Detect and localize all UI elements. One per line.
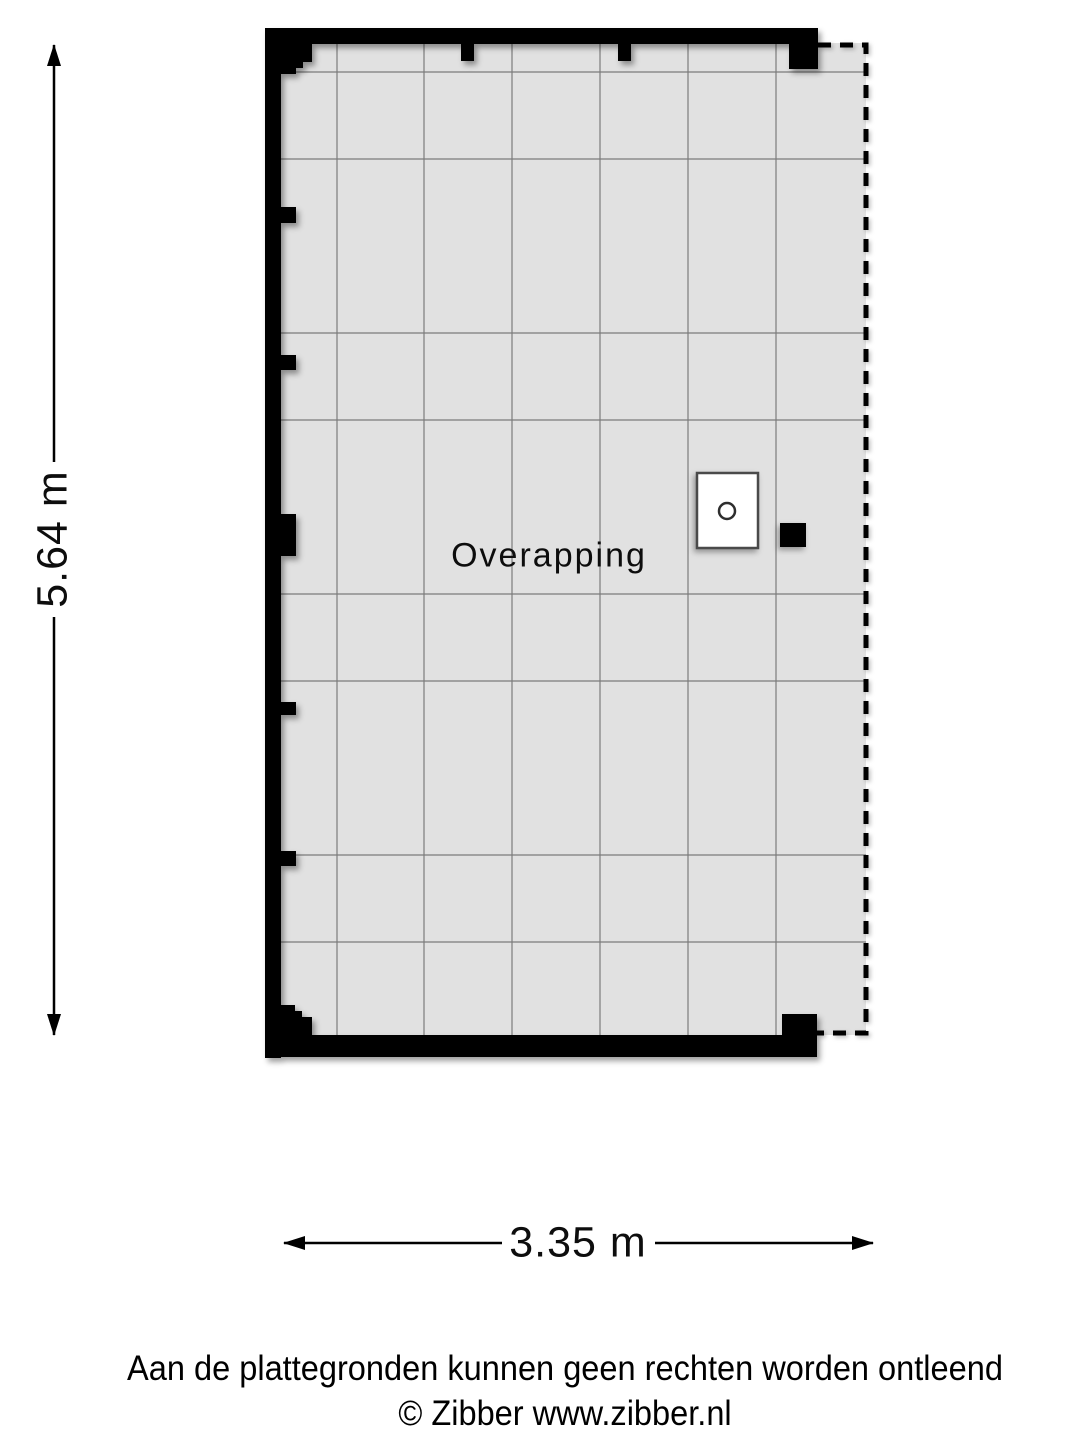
vertical-dimension-label: 5.64 m (29, 470, 78, 607)
footer-disclaimer: Aan de plattegronden kunnen geen rechten… (86, 1346, 1044, 1391)
arrow-left-icon (283, 1236, 305, 1250)
left-wall-post-5 (281, 851, 296, 866)
left-wall-post-2 (281, 355, 296, 370)
appliance-circle-icon (719, 503, 735, 519)
wall-bottom (265, 1035, 817, 1057)
pillar-block (780, 523, 806, 547)
corner-post-top-right (789, 43, 818, 69)
horizontal-dimension-label: 3.35 m (509, 1219, 646, 1268)
footer-copyright: © Zibber www.zibber.nl (86, 1391, 1044, 1436)
wall-top (265, 28, 818, 44)
corner-post-bottom-right (782, 1014, 817, 1035)
pillar (780, 523, 806, 547)
floorplan-page: Overapping 5.64 m 3.35 m Aan de plattegr… (0, 0, 1080, 1440)
appliance-symbol (697, 473, 758, 548)
footer: Aan de plattegronden kunnen geen rechten… (86, 1346, 1044, 1436)
wall-left (265, 28, 281, 1058)
arrow-down-icon (47, 1014, 61, 1036)
room-label: Overapping (451, 537, 647, 576)
top-wall-post-1 (461, 43, 474, 61)
top-wall-post-2 (618, 43, 631, 61)
left-wall-post-4 (281, 702, 296, 715)
left-wall-post-1 (281, 207, 296, 223)
left-wall-post-3 (281, 514, 296, 556)
arrow-up-icon (47, 44, 61, 66)
arrow-right-icon (852, 1236, 874, 1250)
